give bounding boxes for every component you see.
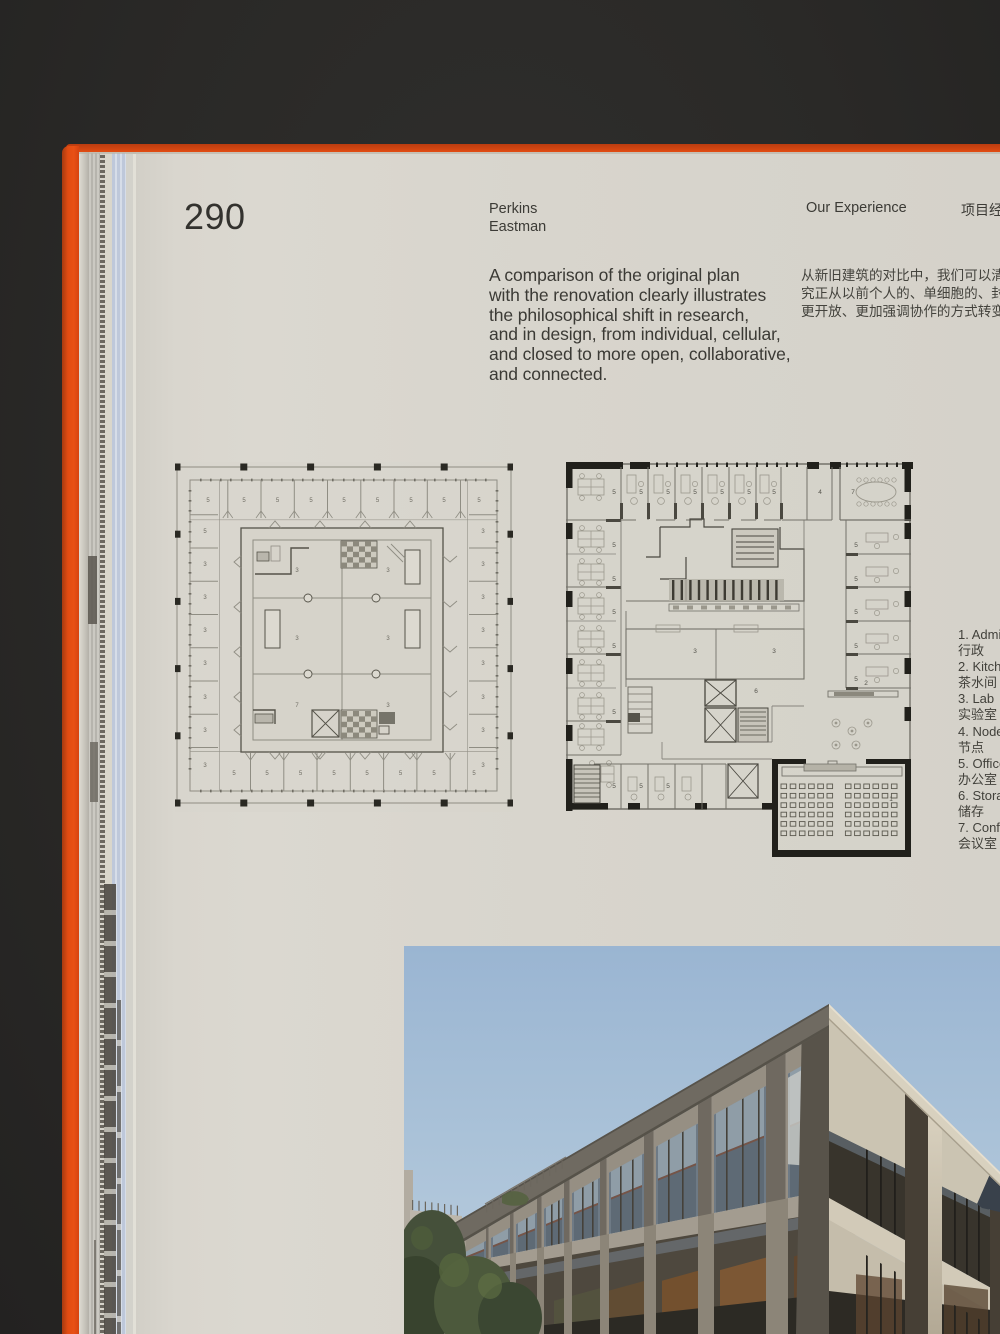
svg-text:3: 3 (693, 648, 697, 655)
svg-text:5: 5 (612, 709, 616, 716)
svg-text:2: 2 (864, 680, 868, 687)
svg-text:6: 6 (754, 688, 758, 695)
svg-text:5: 5 (612, 783, 616, 790)
svg-text:5: 5 (639, 783, 643, 790)
svg-text:5: 5 (612, 489, 616, 496)
svg-text:5: 5 (854, 609, 858, 616)
svg-text:7: 7 (851, 489, 855, 496)
svg-text:5: 5 (666, 489, 670, 496)
svg-text:5: 5 (639, 489, 643, 496)
svg-text:5: 5 (720, 489, 724, 496)
svg-text:1: 1 (889, 796, 893, 803)
svg-text:5: 5 (854, 576, 858, 583)
svg-text:3: 3 (772, 648, 776, 655)
svg-text:5: 5 (854, 542, 858, 549)
svg-text:5: 5 (747, 489, 751, 496)
svg-text:4: 4 (818, 489, 822, 496)
svg-text:5: 5 (693, 489, 697, 496)
svg-text:5: 5 (854, 676, 858, 683)
svg-text:5: 5 (772, 489, 776, 496)
svg-text:5: 5 (854, 643, 858, 650)
svg-text:5: 5 (666, 783, 670, 790)
svg-text:5: 5 (612, 542, 616, 549)
svg-text:5: 5 (612, 609, 616, 616)
svg-text:5: 5 (612, 643, 616, 650)
svg-text:5: 5 (612, 576, 616, 583)
